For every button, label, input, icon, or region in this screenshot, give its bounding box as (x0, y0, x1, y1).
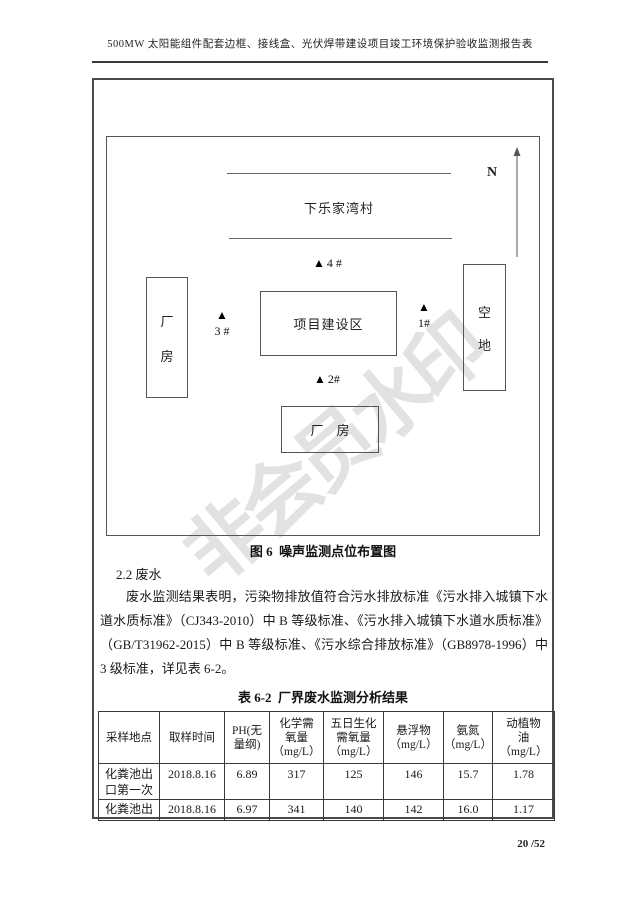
content-cell: N 下乐家湾村 ▲ 4 # 厂 房 (92, 78, 554, 819)
north-arrow-icon (511, 147, 523, 259)
wastewater-paragraph: 废水监测结果表明，污染物排放值符合污水排放标准《污水排入城镇下水道水质标准》（C… (100, 585, 548, 681)
triangle-marker-icon: ▲ (314, 373, 326, 386)
cell-ph: 6.97 (225, 800, 270, 821)
cell-ammonia: 15.7 (444, 764, 493, 800)
village-label: 下乐家湾村 (227, 198, 451, 217)
village-boundary-line-top (227, 173, 451, 174)
point-2-label: 2# (328, 373, 340, 386)
page-number: 20 /52 (517, 838, 545, 850)
page-current: 20 (517, 838, 528, 850)
triangle-marker-icon: ▲ (313, 257, 325, 270)
col-header-ammonia: 氨氮 （mg/L） (444, 712, 493, 764)
table-caption: 表 6-2 厂界废水监测分析结果 (94, 687, 552, 706)
point-4-label: 4 # (327, 257, 342, 270)
table-row: 化粪池出 2018.8.16 6.97 341 140 142 16.0 1.1… (99, 800, 555, 821)
cell-time: 2018.8.16 (160, 764, 225, 800)
vacant-land-area: 空 地 (463, 264, 506, 391)
monitoring-point-1: ▲ 1# (407, 301, 441, 330)
project-construction-area: 项目建设区 (260, 291, 397, 356)
col-header-sampling-time: 取样时间 (160, 712, 225, 764)
cell-time: 2018.8.16 (160, 800, 225, 821)
village-boundary-line-bottom (229, 238, 452, 239)
report-page: 非会员水印 500MW 太阳能组件配套边框、接线盒、光伏焊带建设项目竣工环境保护… (0, 0, 640, 905)
triangle-marker-icon: ▲ (216, 309, 228, 322)
cell-ss: 142 (384, 800, 444, 821)
vacant-land-char-1: 空 (478, 302, 491, 321)
wastewater-results-table: 采样地点 取样时间 PH(无 量纲) 化学需 氧量 （mg/L） 五日生化 需氧… (98, 711, 555, 821)
col-header-ph: PH(无 量纲) (225, 712, 270, 764)
cell-oil: 1.17 (493, 800, 555, 821)
point-1-label: 1# (418, 317, 430, 330)
content-layer: 500MW 太阳能组件配套边框、接线盒、光伏焊带建设项目竣工环境保护验收监测报告… (0, 0, 640, 905)
north-label: N (487, 165, 497, 181)
monitoring-point-4: ▲ 4 # (313, 257, 342, 270)
figure-caption: 图 6 噪声监测点位布置图 (94, 541, 552, 560)
cell-bod5: 140 (324, 800, 384, 821)
factory-left-char-1: 厂 (160, 311, 173, 330)
cell-cod: 317 (270, 764, 324, 800)
cell-ammonia: 16.0 (444, 800, 493, 821)
monitoring-point-2: ▲ 2# (314, 373, 340, 386)
cell-oil: 1.78 (493, 764, 555, 800)
vacant-land-char-2: 地 (478, 335, 491, 354)
col-header-sampling-site: 采样地点 (99, 712, 160, 764)
col-header-cod: 化学需 氧量 （mg/L） (270, 712, 324, 764)
cell-cod: 341 (270, 800, 324, 821)
factory-left-char-2: 房 (160, 346, 173, 365)
col-header-bod5: 五日生化 需氧量 （mg/L） (324, 712, 384, 764)
monitoring-point-3: ▲ 3 # (205, 309, 239, 338)
cell-ss: 146 (384, 764, 444, 800)
cell-ph: 6.89 (225, 764, 270, 800)
cell-site: 化粪池出 (99, 800, 160, 821)
factory-building-left: 厂 房 (146, 277, 188, 398)
page-total: /52 (531, 838, 545, 850)
table-header-row: 采样地点 取样时间 PH(无 量纲) 化学需 氧量 （mg/L） 五日生化 需氧… (99, 712, 555, 764)
cell-bod5: 125 (324, 764, 384, 800)
col-header-animal-plant-oil: 动植物 油 （mg/L） (493, 712, 555, 764)
north-indicator: N (487, 147, 527, 262)
col-header-suspended-solids: 悬浮物 （mg/L） (384, 712, 444, 764)
noise-monitoring-diagram: N 下乐家湾村 ▲ 4 # 厂 房 (106, 136, 540, 536)
document-title: 500MW 太阳能组件配套边框、接线盒、光伏焊带建设项目竣工环境保护验收监测报告… (92, 36, 548, 51)
cell-site: 化粪池出 口第一次 (99, 764, 160, 800)
header-divider (92, 61, 548, 63)
section-heading: 2.2 废水 (116, 564, 162, 583)
factory-building-bottom: 厂 房 (281, 406, 379, 453)
point-3-label: 3 # (215, 325, 230, 338)
table-row: 化粪池出 口第一次 2018.8.16 6.89 317 125 146 15.… (99, 764, 555, 800)
triangle-marker-icon: ▲ (418, 301, 430, 314)
